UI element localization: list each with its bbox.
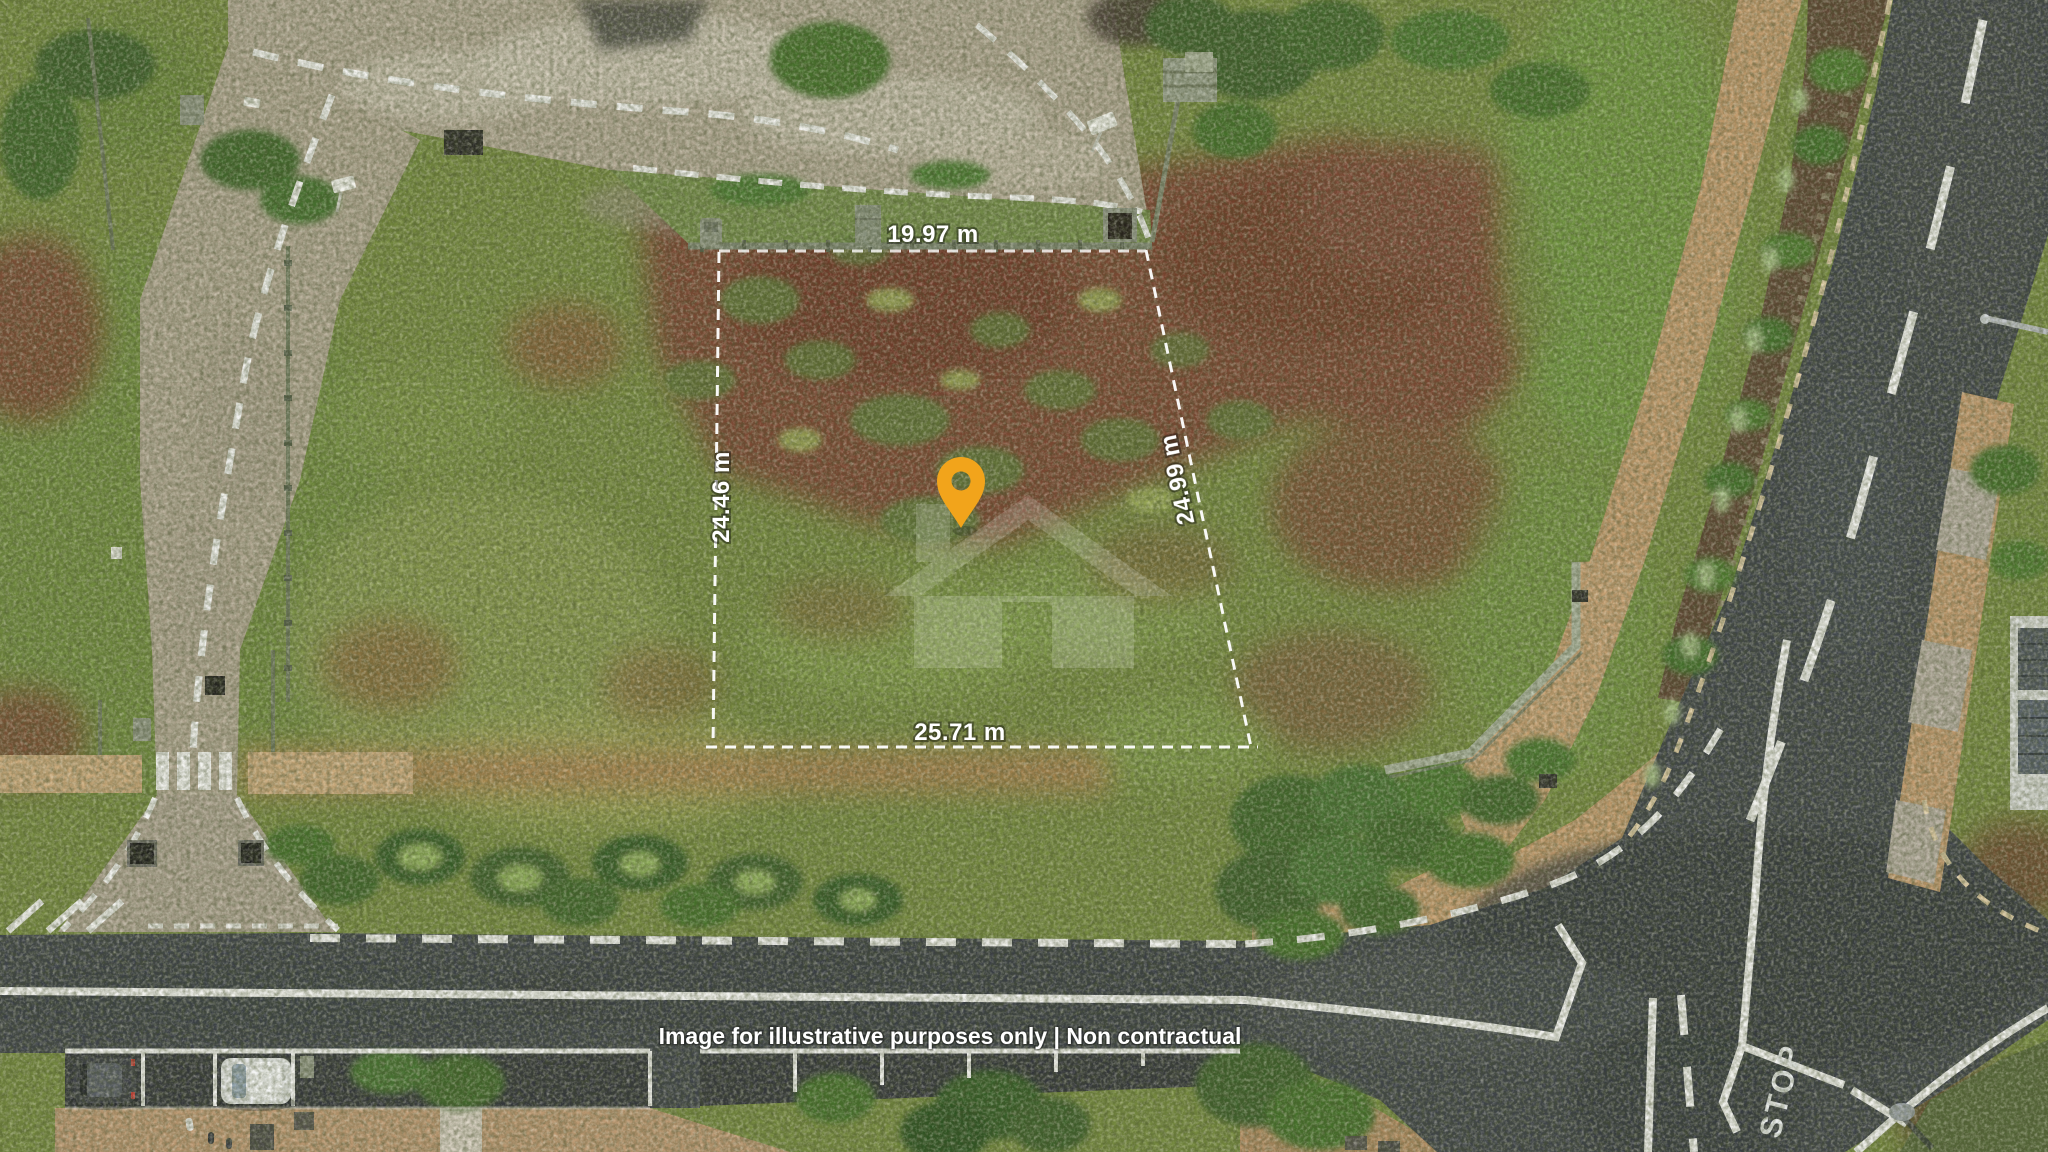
grain-light bbox=[0, 0, 2048, 1152]
plot-width-bottom-label: 25.71 m bbox=[914, 719, 1006, 746]
plot-width-top-label: 19.97 m bbox=[887, 221, 979, 248]
aerial-plot-photo: STOP bbox=[0, 0, 2048, 1152]
disclaimer-text: Image for illustrative purposes only | N… bbox=[659, 1023, 1242, 1049]
aerial-scene: STOP bbox=[0, 0, 2048, 1152]
plot-side-left-label: 24.46 m bbox=[708, 451, 735, 543]
